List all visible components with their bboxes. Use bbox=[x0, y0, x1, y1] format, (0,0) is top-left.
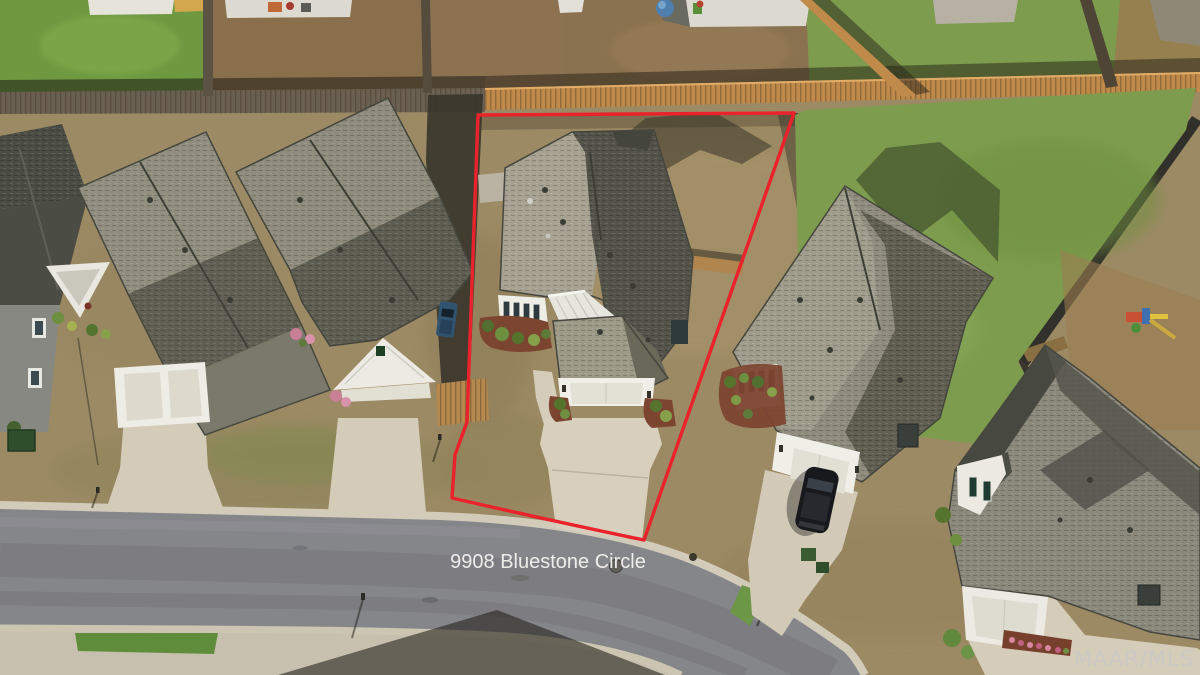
utility-box bbox=[801, 548, 816, 561]
hvac-unit-right bbox=[898, 424, 918, 447]
hvac-unit-subject bbox=[671, 320, 688, 344]
hvac-unit-farright bbox=[1138, 585, 1160, 605]
address-label: 9908 Bluestone Circle bbox=[450, 551, 646, 573]
utility-box bbox=[816, 562, 829, 573]
mls-watermark: MAAR/MLS bbox=[1074, 647, 1194, 671]
coach-light bbox=[647, 391, 651, 398]
coach-light bbox=[562, 385, 566, 392]
grass-strip bbox=[75, 633, 218, 654]
top-patio-pad bbox=[933, 0, 1018, 24]
utility-box bbox=[8, 430, 35, 451]
aerial-photo: 9908 Bluestone Circle MAAR/MLS bbox=[0, 0, 1200, 675]
top-house-wall bbox=[88, 0, 174, 15]
driveway-centerleft-house bbox=[328, 418, 426, 512]
